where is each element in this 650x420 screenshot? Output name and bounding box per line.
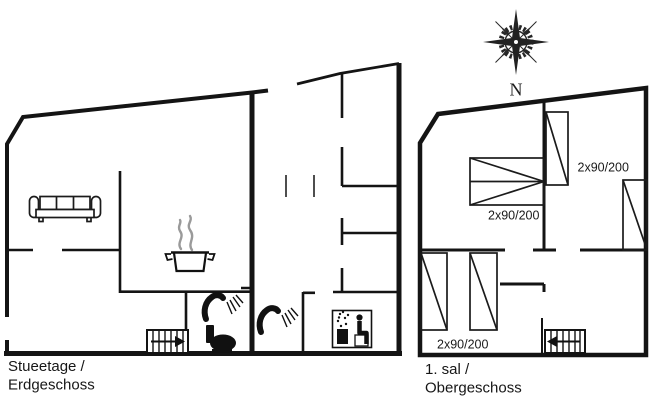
ground-floor-title-line2: Erdgeschoss: [8, 377, 95, 394]
floor-plan-svg: Stueetage / Erdgeschoss: [0, 0, 650, 420]
wall: [297, 64, 399, 85]
compass-rose-icon: N: [483, 9, 549, 100]
compass-north-label: N: [510, 80, 523, 100]
bed-icon: [623, 180, 647, 250]
bed-icon: [421, 253, 447, 330]
floorplan-image: Stueetage / Erdgeschoss: [0, 0, 650, 420]
ground-floor-title: Stueetage / Erdgeschoss: [8, 358, 95, 394]
sauna-icon: [333, 311, 372, 348]
bunk-bed-icon: [546, 112, 568, 185]
shower-icon: [260, 308, 298, 332]
steam: [189, 216, 192, 250]
steam: [179, 220, 182, 249]
double-bed-icon: [470, 158, 544, 205]
stairs-down-icon: [545, 330, 585, 353]
door-opening-marks: [286, 175, 314, 197]
ground-floor-plan: Stueetage / Erdgeschoss: [4, 63, 402, 394]
bed-icon: [470, 253, 497, 330]
sofa-icon: [30, 197, 101, 222]
steaming-pot-icon: [166, 216, 215, 271]
upper-floor-title-line1: 1. sal /: [425, 361, 470, 378]
ground-floor-title-line1: Stueetage /: [8, 358, 86, 375]
upper-floor-title-line2: Obergeschoss: [425, 380, 522, 397]
bed-size-label: 2x90/200: [578, 161, 629, 175]
toilet-icon: [206, 325, 236, 353]
bed-size-label: 2x90/200: [488, 209, 539, 223]
bed-size-label: 2x90/200: [437, 338, 488, 352]
stairs-up-icon: [147, 330, 188, 353]
upper-floor-title: 1. sal / Obergeschoss: [425, 361, 522, 397]
upper-floor-interior-walls: [420, 100, 647, 292]
upper-floor-plan: 2x90/200 2x90/200 2x90/200 1. sal / Ober…: [420, 88, 647, 397]
shower-icon: [205, 295, 243, 319]
